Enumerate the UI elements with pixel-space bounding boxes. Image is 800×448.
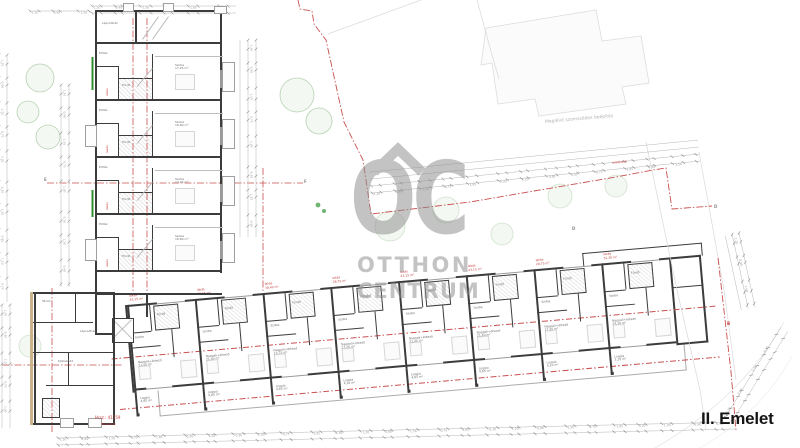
wall <box>33 292 115 294</box>
section-marker-f: F <box>304 179 307 184</box>
floor-plan-canvas: 1,200,901,500,751,850,301,200,901,500,75… <box>0 0 800 448</box>
floor-label: II. Emelet <box>701 409 774 429</box>
wall <box>34 292 36 425</box>
tan-wall <box>30 292 33 425</box>
section-marker-b: B <box>727 321 730 326</box>
wall <box>68 352 69 385</box>
wall <box>46 385 115 386</box>
room-label: Lépcsőház <box>80 330 96 333</box>
wall <box>33 352 115 353</box>
wall <box>113 292 115 425</box>
section-marker-e: E <box>44 177 47 182</box>
stair-block: Tároló Közlekedő Lépcsőház Hrsz.: 41159 … <box>0 0 800 448</box>
wall <box>75 292 76 322</box>
room-label: Közlekedő <box>58 360 73 363</box>
section-marker-d2: D <box>714 204 717 209</box>
plot-number-label: Hrsz.: 41159 <box>95 416 120 421</box>
section-marker-d1: D <box>572 226 575 231</box>
wall <box>33 322 93 323</box>
shaft <box>42 398 60 418</box>
room-label: Tároló <box>42 300 51 303</box>
entry-step <box>60 418 74 428</box>
plot-sub-label: Társasház <box>101 423 116 427</box>
